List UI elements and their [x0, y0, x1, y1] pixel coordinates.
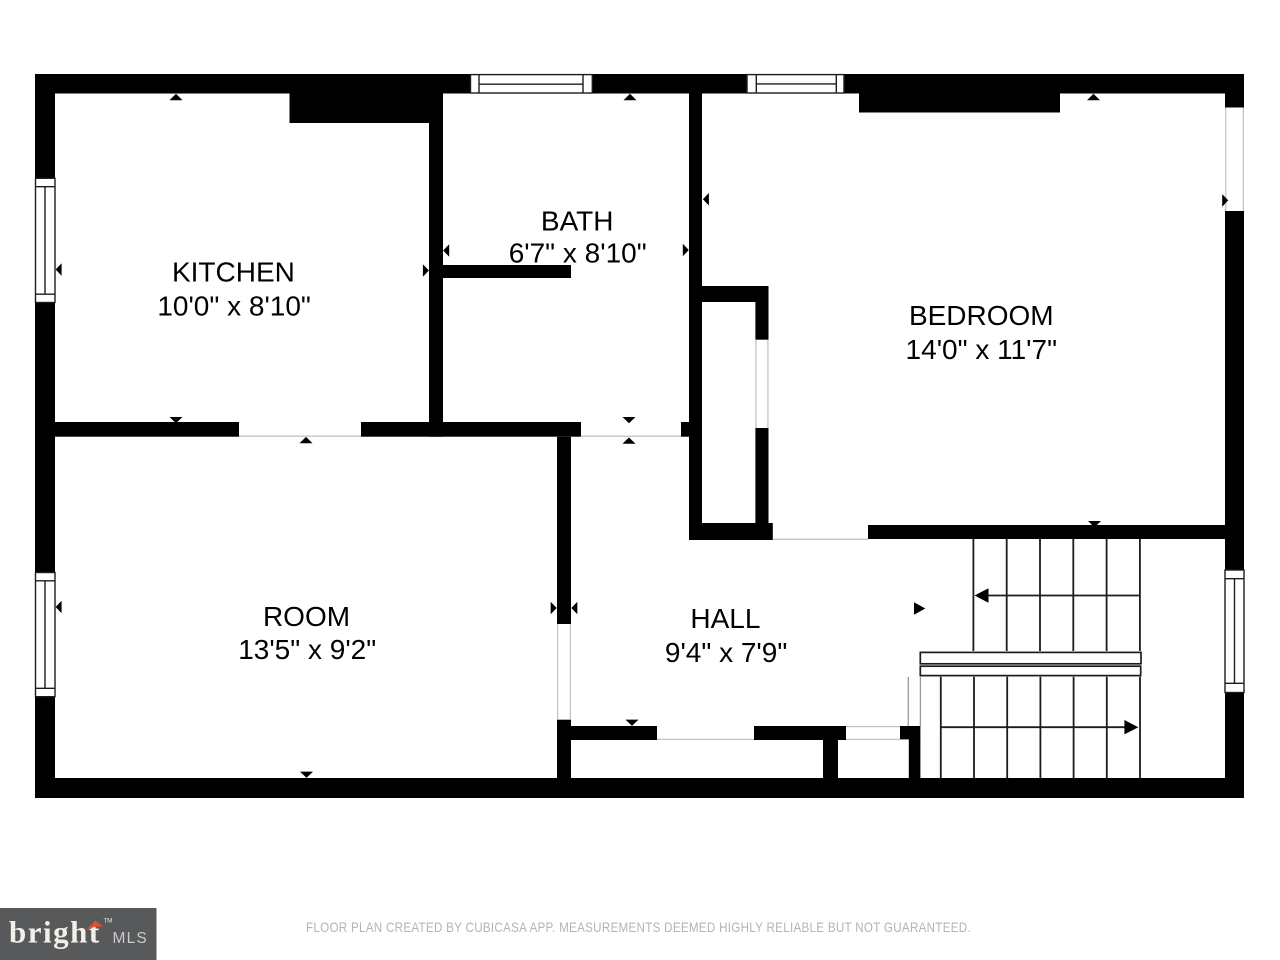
svg-text:HALL: HALL — [690, 603, 760, 634]
svg-text:10'0" x 8'10": 10'0" x 8'10" — [157, 290, 311, 321]
svg-text:MLS: MLS — [113, 930, 148, 947]
svg-text:TM: TM — [104, 918, 113, 925]
svg-text:FLOOR PLAN CREATED BY CUBICASA: FLOOR PLAN CREATED BY CUBICASA APP. MEAS… — [306, 919, 971, 935]
svg-text:KITCHEN: KITCHEN — [172, 257, 295, 288]
svg-text:BEDROOM: BEDROOM — [909, 300, 1054, 331]
svg-text:6'7" x 8'10": 6'7" x 8'10" — [509, 237, 647, 268]
svg-text:14'0" x 11'7": 14'0" x 11'7" — [906, 334, 1057, 365]
svg-text:BATH: BATH — [541, 206, 614, 237]
svg-text:ROOM: ROOM — [263, 601, 350, 632]
svg-text:9'4" x 7'9": 9'4" x 7'9" — [665, 637, 787, 668]
svg-text:bright: bright — [9, 915, 101, 950]
svg-text:13'5" x 9'2": 13'5" x 9'2" — [238, 634, 376, 665]
